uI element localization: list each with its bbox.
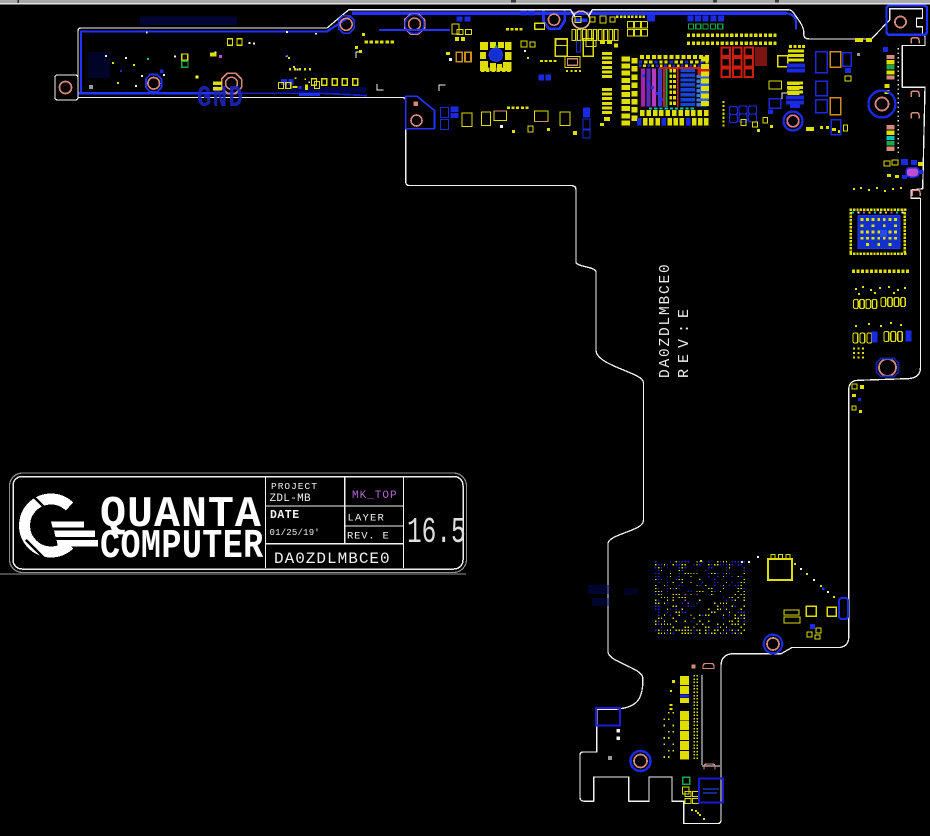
svg-text:16.5: 16.5 bbox=[407, 513, 466, 554]
svg-text:COMPUTER: COMPUTER bbox=[100, 524, 264, 570]
svg-text:DA0ZDLMBCE0: DA0ZDLMBCE0 bbox=[658, 262, 674, 378]
svg-text:REV. E: REV. E bbox=[347, 531, 390, 543]
svg-text:GND: GND bbox=[197, 81, 244, 116]
svg-text:MK_TOP: MK_TOP bbox=[352, 490, 398, 502]
svg-text:PROJECT: PROJECT bbox=[271, 481, 318, 492]
svg-text:01/25/19': 01/25/19' bbox=[270, 528, 320, 538]
svg-text:LAYER: LAYER bbox=[348, 513, 386, 525]
svg-text:ZDL-MB: ZDL-MB bbox=[270, 493, 312, 505]
svg-text:DATE: DATE bbox=[270, 509, 300, 522]
svg-text:REV:E: REV:E bbox=[676, 303, 693, 378]
svg-text:DA0ZDLMBCE0: DA0ZDLMBCE0 bbox=[274, 550, 391, 568]
